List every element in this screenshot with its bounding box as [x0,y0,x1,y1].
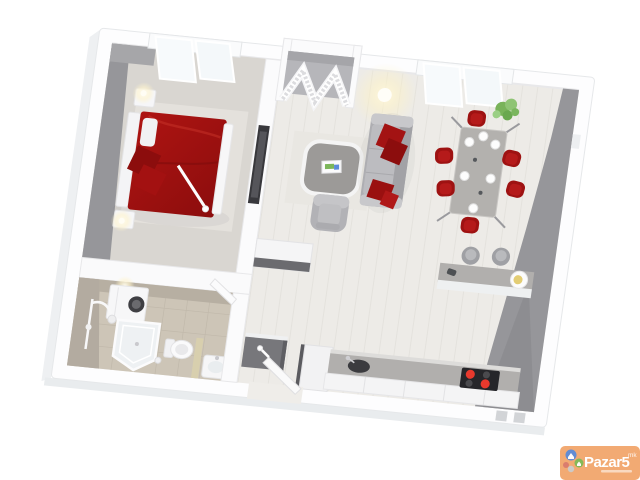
toilet-paper [155,357,162,364]
logo-red-dot [563,462,569,468]
floor-plan-svg: Pazar5 mk [0,0,640,480]
magazine-cover [334,165,339,170]
watermark: Pazar5 mk [560,446,640,480]
watermark-tagline-bar [601,470,632,473]
wall-notch [513,412,525,423]
living-window-pane [418,63,467,106]
dining-chair [460,216,480,234]
apartment [41,19,596,435]
wall-notch [495,410,507,421]
dining-chair [435,147,453,164]
floor-lamp-head [202,206,209,213]
logo-gray-dot [568,466,574,472]
magazines [322,160,341,173]
hall-closet [275,38,362,108]
living-window-pane [459,67,508,106]
floor-plan-render: Pazar5 mk [0,0,640,480]
shower-head [107,315,116,324]
cooktop [459,367,500,391]
dining-chair [437,180,455,197]
watermark-brand-text: Pazar5 [584,454,630,471]
dining-chair [467,110,487,128]
armchair-cushion [317,203,342,225]
door-handle-knob [257,345,263,351]
magazine-cover [325,164,334,169]
watermark-suffix-text: mk [628,452,637,459]
